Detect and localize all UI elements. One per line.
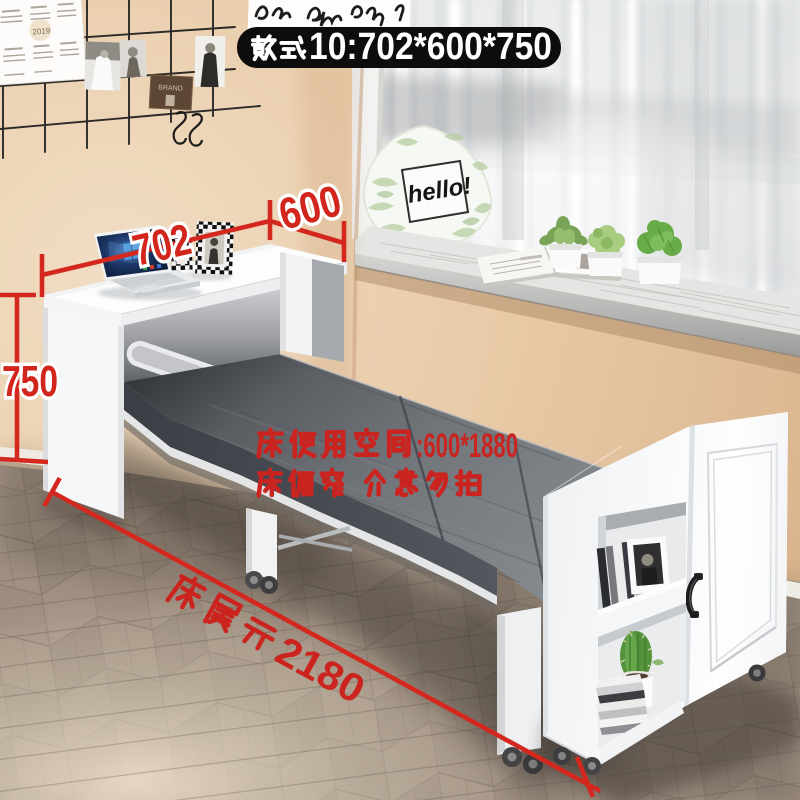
svg-text:2019: 2019: [32, 26, 51, 36]
svg-text:750: 750: [2, 357, 58, 406]
svg-text:BRAND: BRAND: [158, 84, 183, 92]
svg-text:10:702*600*750: 10:702*600*750: [309, 26, 552, 68]
svg-text::600*1880: :600*1880: [416, 427, 518, 465]
